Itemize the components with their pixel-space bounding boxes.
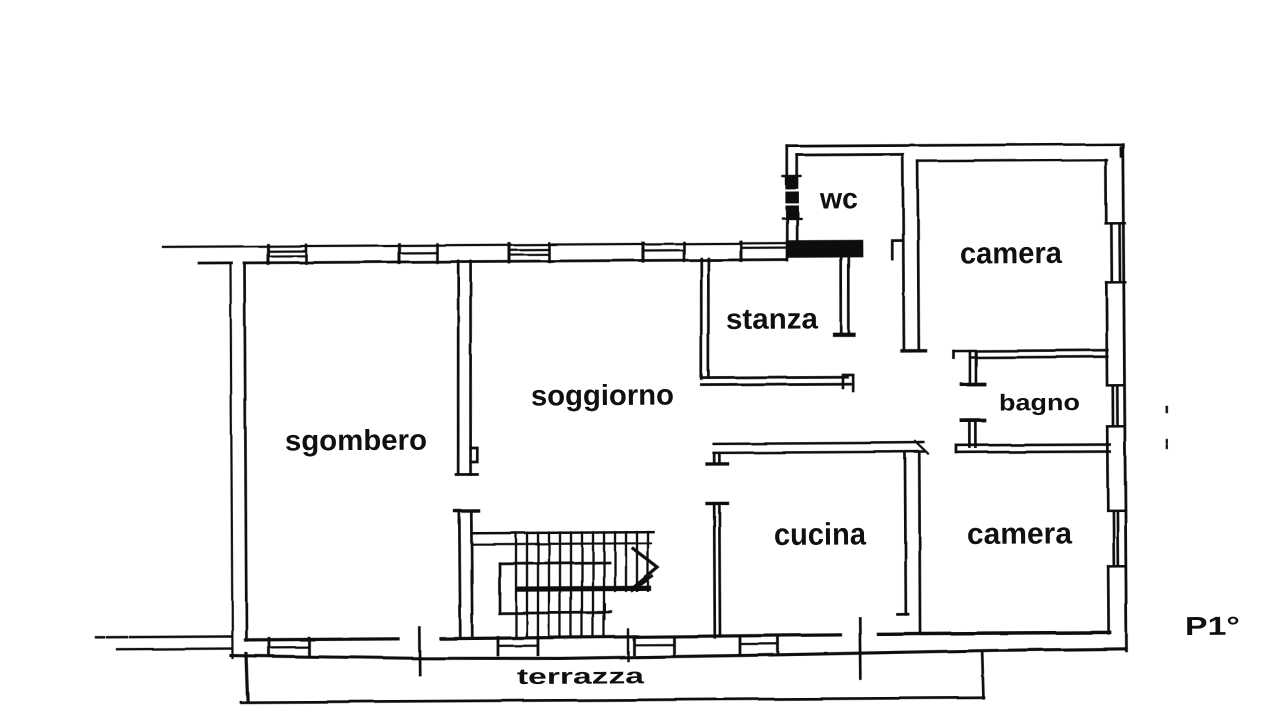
svg-text:terrazza: terrazza xyxy=(517,663,645,689)
svg-text:bagno: bagno xyxy=(999,389,1080,415)
svg-text:cucina: cucina xyxy=(774,516,867,552)
svg-text:soggiorno: soggiorno xyxy=(531,380,674,413)
svg-text:wc: wc xyxy=(819,183,858,215)
svg-text:camera: camera xyxy=(960,237,1063,271)
svg-text:P1°: P1° xyxy=(1185,611,1240,641)
svg-text:stanza: stanza xyxy=(726,303,819,336)
svg-text:camera: camera xyxy=(967,517,1073,551)
svg-text:sgombero: sgombero xyxy=(285,425,427,458)
